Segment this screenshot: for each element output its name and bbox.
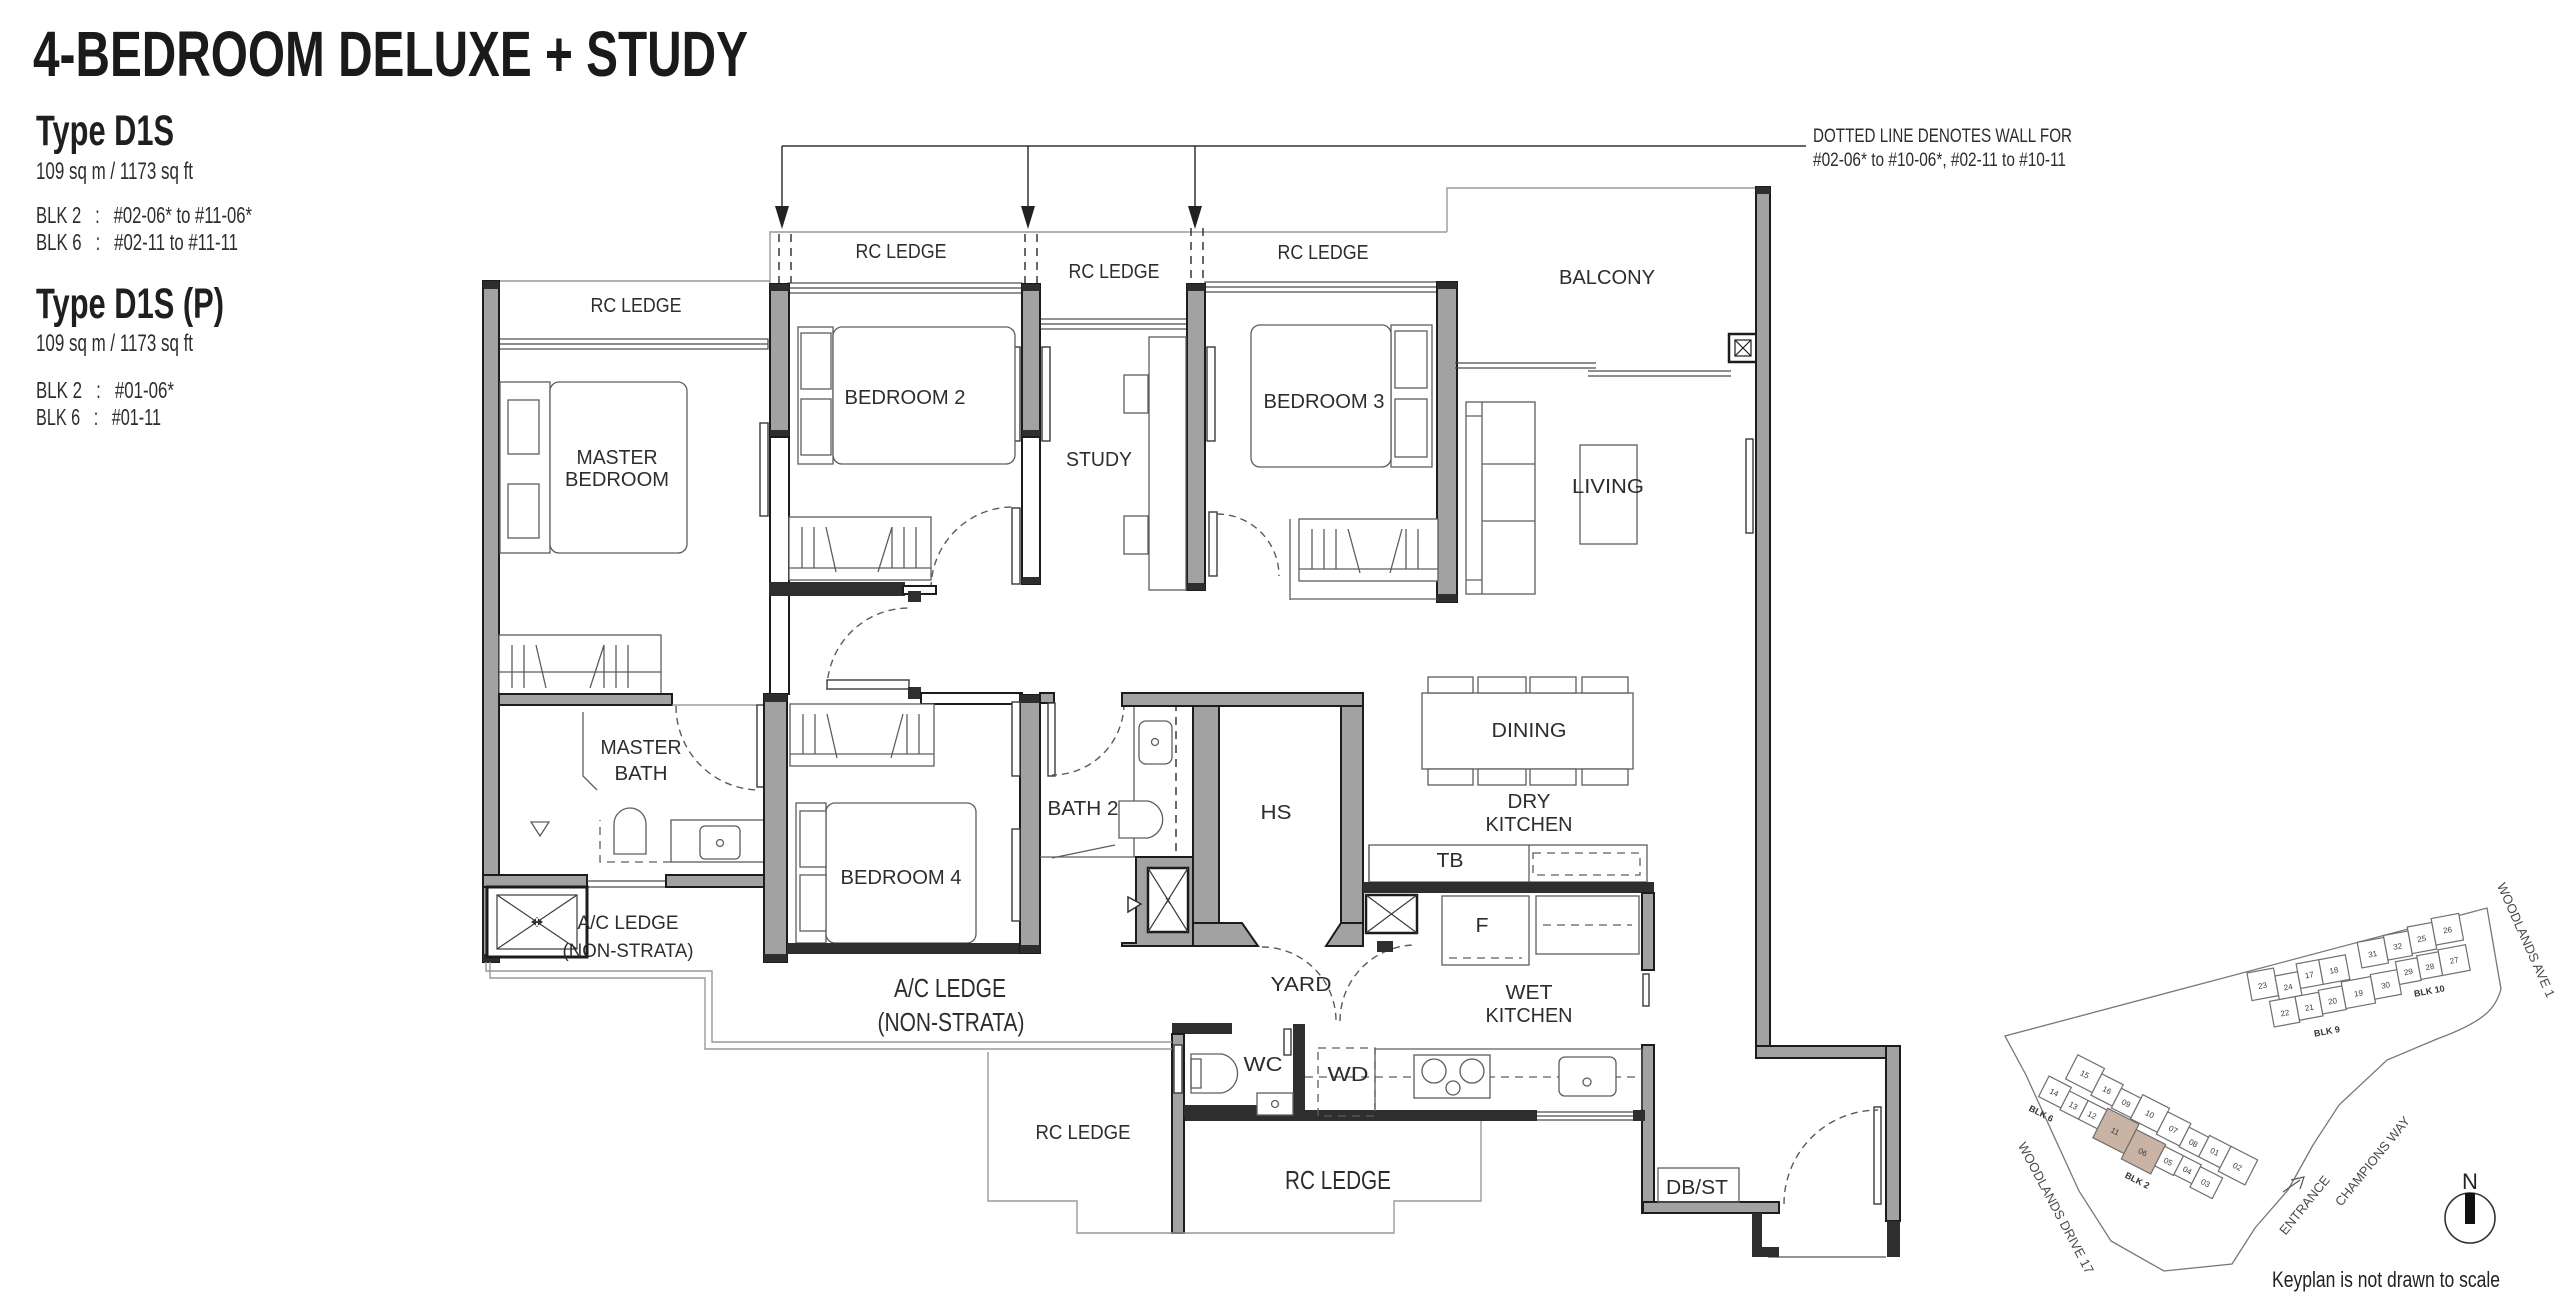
svg-text:DB/ST: DB/ST [1666, 1177, 1728, 1199]
svg-text:MASTER: MASTER [601, 737, 682, 759]
svg-text:DOTTED LINE DENOTES WALL FOR: DOTTED LINE DENOTES WALL FOR [1813, 126, 2072, 147]
svg-text:RC LEDGE: RC LEDGE [591, 295, 682, 317]
svg-text:BLK 6 : #01-11: BLK 6 : #01-11 [36, 404, 161, 430]
svg-text:BEDROOM: BEDROOM [565, 469, 669, 491]
svg-text:BEDROOM 3: BEDROOM 3 [1264, 391, 1385, 413]
svg-text:RC LEDGE: RC LEDGE [856, 241, 947, 263]
svg-text:MASTER: MASTER [577, 447, 658, 469]
svg-text:BATH: BATH [615, 763, 668, 785]
svg-text:BATH 2: BATH 2 [1048, 798, 1119, 820]
svg-text:(NON-STRATA): (NON-STRATA) [563, 941, 694, 962]
svg-text:RC LEDGE: RC LEDGE [1285, 1165, 1391, 1195]
svg-text:Type D1S: Type D1S [36, 107, 174, 155]
svg-text:#02-06* to #10-06*, #02-11 to: #02-06* to #10-06*, #02-11 to #10-11 [1813, 150, 2066, 171]
svg-text:BLK 2 : #02-06* to #11-06*: BLK 2 : #02-06* to #11-06* [36, 202, 252, 228]
svg-text:A/C LEDGE: A/C LEDGE [578, 913, 679, 934]
svg-text:109 sq m / 1173 sq ft: 109 sq m / 1173 sq ft [36, 330, 193, 357]
svg-text:A/C LEDGE: A/C LEDGE [894, 973, 1006, 1003]
svg-text:STUDY: STUDY [1066, 449, 1132, 471]
svg-text:(NON-STRATA): (NON-STRATA) [878, 1007, 1025, 1037]
svg-text:RC LEDGE: RC LEDGE [1036, 1122, 1131, 1144]
svg-text:KITCHEN: KITCHEN [1486, 1005, 1573, 1027]
svg-text:WET: WET [1506, 982, 1553, 1004]
svg-text:BEDROOM 4: BEDROOM 4 [841, 867, 962, 889]
svg-text:YARD: YARD [1271, 974, 1332, 996]
svg-text:WC: WC [1244, 1054, 1283, 1076]
svg-text:BALCONY: BALCONY [1559, 267, 1655, 289]
svg-text:DINING: DINING [1492, 720, 1567, 742]
svg-text:RC LEDGE: RC LEDGE [1278, 242, 1369, 264]
svg-text:4-BEDROOM DELUXE + STUDY: 4-BEDROOM DELUXE + STUDY [33, 18, 748, 90]
svg-text:TB: TB [1437, 850, 1464, 872]
svg-text:x: x [1165, 895, 1171, 907]
svg-text:HS: HS [1261, 802, 1292, 824]
svg-text:109 sq m / 1173 sq ft: 109 sq m / 1173 sq ft [36, 158, 193, 185]
svg-text:DRY: DRY [1508, 791, 1551, 813]
svg-text:BLK 2 : #01-06*: BLK 2 : #01-06* [36, 377, 174, 403]
svg-text:BEDROOM 2: BEDROOM 2 [845, 387, 966, 409]
svg-text:RC LEDGE: RC LEDGE [1069, 261, 1160, 283]
svg-text:BLK 6 : #02-11 to #11-11: BLK 6 : #02-11 to #11-11 [36, 229, 238, 255]
svg-text:Type D1S (P): Type D1S (P) [36, 280, 224, 328]
svg-text:N: N [2462, 1169, 2478, 1194]
svg-text:KITCHEN: KITCHEN [1486, 814, 1573, 836]
svg-text:Keyplan is not drawn to scale: Keyplan is not drawn to scale [2272, 1267, 2500, 1292]
svg-text:F: F [1476, 915, 1489, 937]
svg-text:WD: WD [1328, 1064, 1369, 1086]
svg-text:LIVING: LIVING [1572, 476, 1644, 498]
